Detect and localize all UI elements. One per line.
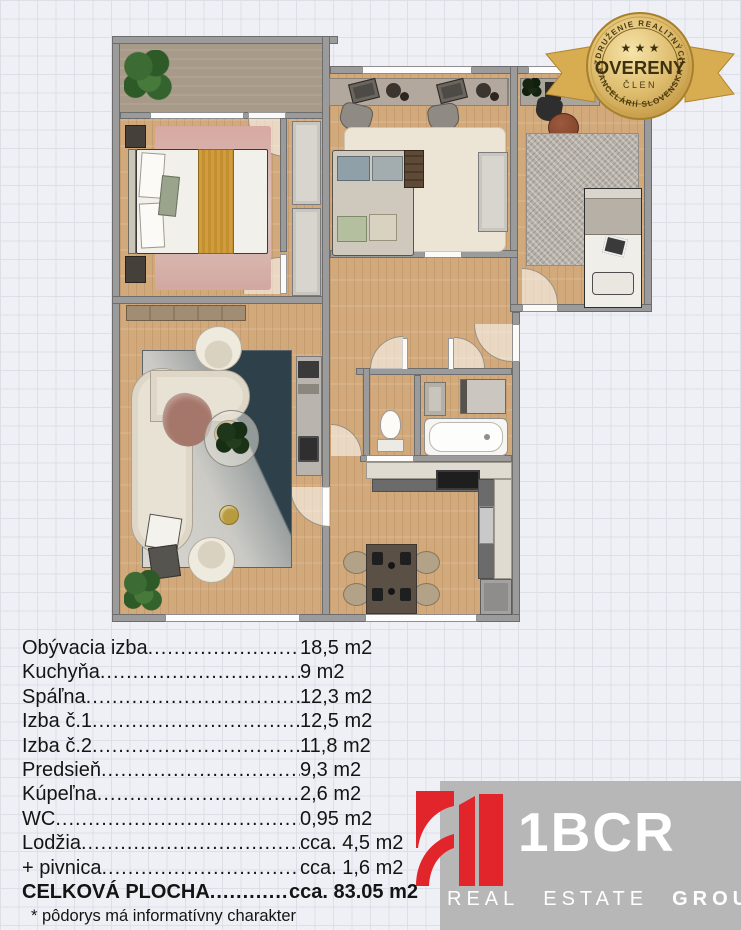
area-row: Obývacia izba18,5 m2	[22, 636, 418, 660]
bathtub-inner	[429, 422, 503, 452]
wall-bedroom-living	[112, 296, 330, 304]
bed-headboard	[128, 149, 136, 254]
armchair-bottom	[188, 537, 235, 583]
placemat-3	[372, 588, 383, 601]
bedroom-door-leaf	[280, 254, 287, 294]
room-area: cca. 4,5 m2	[300, 831, 403, 855]
badge-stars: ★ ★ ★	[621, 41, 660, 55]
dot-leader	[148, 636, 300, 660]
bed-runner	[198, 149, 234, 254]
kitchenette-top	[298, 361, 319, 378]
dot-leader	[92, 709, 300, 733]
bathtub-drain	[484, 434, 490, 440]
dot-leader	[100, 660, 300, 684]
room-area: 0,95 m2	[300, 807, 372, 831]
room-area: 11,8 m2	[300, 734, 371, 758]
room-area: 2,6 m2	[300, 782, 361, 806]
table-plant-leaves	[216, 422, 250, 456]
living-plant	[124, 570, 162, 614]
logo-mark-icon	[413, 790, 505, 890]
area-row: WC0,95 m2	[22, 807, 418, 831]
desk-mug-2	[490, 92, 499, 101]
room-area: cca. 1,6 m2	[300, 856, 403, 880]
area-row: Izba č.211,8 m2	[22, 734, 418, 758]
room-label: Lodžia	[22, 831, 81, 855]
room-label: + pivnica	[22, 856, 102, 880]
room-label: Spáľna	[22, 685, 86, 709]
wall-wc-left	[363, 368, 370, 462]
nightstand-bottom	[125, 256, 146, 283]
dot-leader	[101, 758, 300, 782]
tagline-word: GROUP	[672, 888, 741, 911]
toilet-tank	[377, 439, 404, 452]
dot-leader	[86, 685, 300, 709]
table-centerpiece	[388, 562, 395, 569]
wall-wc-bath	[414, 375, 421, 462]
izba1-pillow-1	[337, 156, 370, 181]
kitchenette-oven	[298, 436, 319, 462]
wall-outer-left	[112, 36, 120, 622]
loggia-window	[150, 112, 244, 119]
area-row: Kúpeľna2,6 m2	[22, 782, 418, 806]
nightstand-top	[125, 125, 146, 148]
room-area: 9,3 m2	[300, 758, 361, 782]
total-label: CELKOVÁ PLOCHA	[22, 880, 210, 904]
total-area-row: CELKOVÁ PLOCHAcca. 83.05 m2	[22, 880, 418, 904]
room-label: Izba č.1	[22, 709, 92, 733]
wall-izba1-izba2	[510, 66, 518, 312]
izba1-window	[362, 66, 472, 74]
dot-leader	[97, 782, 300, 806]
badge-subtitle: ČLEN	[623, 80, 657, 90]
bath-niche	[424, 382, 446, 416]
kitchenette-mid	[298, 384, 319, 394]
room-area: 12,3 m2	[300, 685, 372, 709]
gold-tray	[219, 505, 239, 525]
area-row: Izba č.112,5 m2	[22, 709, 418, 733]
room-area: 9 m2	[300, 660, 344, 684]
table-centerpiece-2	[388, 588, 395, 595]
entry-door-gap	[512, 324, 520, 362]
placemat-2	[400, 552, 411, 565]
dot-leader	[55, 807, 300, 831]
room-label: Izba č.2	[22, 734, 92, 758]
tagline-word: ESTATE	[543, 888, 648, 911]
dot-leader	[102, 856, 301, 880]
room-label: Kuchyňa	[22, 660, 100, 684]
kitchen-pass-window	[366, 455, 414, 462]
dot-leader	[210, 880, 289, 904]
izba1-pillow-2	[372, 156, 403, 181]
area-row: Spáľna12,3 m2	[22, 685, 418, 709]
dining-chair-4	[413, 583, 440, 606]
total-area: cca. 83.05 m2	[289, 880, 418, 904]
desk-plant-1	[386, 83, 401, 98]
placemat-4	[400, 588, 411, 601]
dot-leader	[81, 831, 300, 855]
footnote: * pôdorys má informatívny charakter	[22, 907, 418, 926]
desk-mug-1	[400, 92, 409, 101]
izba2-desk-plant	[522, 78, 542, 98]
loggia-plant	[124, 50, 172, 104]
room-area: 12,5 m2	[300, 709, 372, 733]
armchair-top	[195, 326, 242, 371]
wall-bedroom-closet	[280, 118, 287, 252]
wall-wc-top	[356, 368, 512, 375]
area-row: + pivnicacca. 1,6 m2	[22, 856, 418, 880]
logo-tagline: REAL ESTATE GROUP	[447, 888, 741, 911]
room-label: Kúpeľna	[22, 782, 97, 806]
kitchen-counter-right-top	[494, 479, 512, 579]
area-row: Predsieň9,3 m2	[22, 758, 418, 782]
single-bed-blanket	[585, 199, 641, 235]
cooktop	[436, 470, 480, 490]
washing-machine	[460, 379, 506, 414]
room-label: Predsieň	[22, 758, 101, 782]
placemat-1	[372, 552, 383, 565]
verified-member-badge: ZDRUŽENIE REALITNÝCH KANCELÁRIÍ SLOVENSK…	[540, 2, 740, 130]
living-window	[165, 614, 300, 622]
real-estate-flyer: ZDRUŽENIE REALITNÝCH KANCELÁRIÍ SLOVENSK…	[0, 0, 741, 930]
izba2-door-gap	[522, 304, 558, 312]
fridge	[480, 579, 512, 615]
tagline-word: REAL	[447, 888, 519, 911]
izba1-shelf	[404, 150, 424, 188]
room-label: Obývacia izba	[22, 636, 148, 660]
wardrobe-2	[292, 208, 321, 296]
area-legend: Obývacia izba18,5 m2 Kuchyňa9 m2 Spáľna1…	[22, 636, 418, 926]
logo-wordmark: 1BCR	[518, 800, 676, 864]
izba1-pillow-3	[337, 216, 367, 242]
sideboard	[126, 305, 246, 321]
single-bed-headboard	[585, 189, 641, 199]
area-row: Kuchyňa9 m2	[22, 660, 418, 684]
room-label: WC	[22, 807, 55, 831]
desk-plant-2	[476, 83, 491, 98]
kitchen-drawers	[479, 506, 494, 544]
area-row: Lodžiacca. 4,5 m2	[22, 831, 418, 855]
dining-chair-3	[413, 551, 440, 574]
single-bed-pillow	[592, 272, 634, 295]
kitchen-window	[365, 614, 477, 622]
izba1-pillow-4	[369, 214, 397, 241]
izba1-cabinet	[478, 152, 508, 232]
dot-leader	[92, 734, 300, 758]
badge-title: OVERENÝ	[595, 57, 686, 78]
toilet-bowl	[380, 410, 401, 439]
wardrobe-1	[292, 121, 321, 205]
room-area: 18,5 m2	[300, 636, 372, 660]
wall-loggia-top	[112, 36, 338, 44]
wall-main-vertical	[322, 36, 330, 622]
